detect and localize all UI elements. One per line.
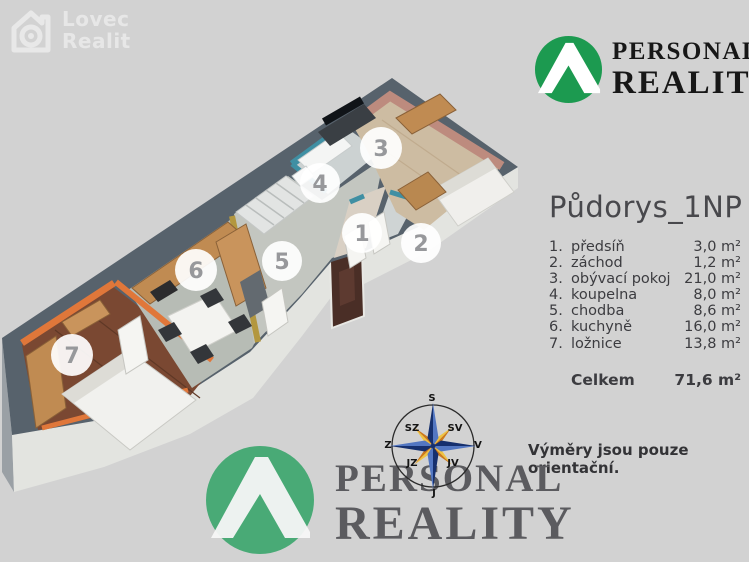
floorplan-flyer: 1 2 3 4 5 6 7 Lovec Realit [0,0,749,562]
personal-reality-wordmark: PERSONAL REALITY [612,39,749,100]
room-area: 21,0 m² [684,271,741,287]
legend-row: 5. chodba 8,6 m² [549,303,741,319]
compass-label-sw: JZ [406,458,418,469]
room-number: 3. [549,271,571,287]
compass-label-n: S [428,393,435,404]
room-number: 1. [549,239,571,255]
badge-6: 6 [188,259,203,284]
personal-reality-mark [534,35,603,104]
legend-row: 7. ložnice 13,8 m² [549,336,741,352]
compass-label-nw: SZ [405,423,419,434]
badge-7: 7 [64,344,79,369]
badge-1: 1 [354,222,369,247]
room-name: předsíň [571,239,693,255]
compass-label-ne: SV [448,423,463,434]
room-name: obývací pokoj [571,271,684,287]
lovec-realit-watermark: Lovec Realit [8,6,131,54]
brand-word-reality: REALITY [612,67,749,100]
room-name: záchod [571,255,693,271]
compass-rose: S SV V JV J JZ Z SZ [377,390,489,502]
room-number: 7. [549,336,571,352]
room-area: 13,8 m² [684,336,741,352]
legend-row: 4. koupelna 8,0 m² [549,287,741,303]
legend-row: 6. kuchyně 16,0 m² [549,319,741,335]
room-name: chodba [571,303,693,319]
total-area: 71,6 m² [674,371,741,389]
room-name: ložnice [571,336,684,352]
room-list: 1. předsíň 3,0 m² 2. záchod 1,2 m² 3. ob… [549,239,741,352]
lovec-line1: Lovec [62,8,131,30]
compass-cardinal-points [390,403,476,489]
room-area: 1,2 m² [693,255,741,271]
plan-title: Půdorys_1NP [549,190,741,224]
compass-label-e: V [474,440,482,451]
room-name: koupelna [571,287,693,303]
compass-label-w: Z [384,440,391,451]
legend-row: 1. předsíň 3,0 m² [549,239,741,255]
lovec-realit-text: Lovec Realit [62,8,131,53]
compass-label-s: J [431,488,436,499]
legend-row: 3. obývací pokoj 21,0 m² [549,271,741,287]
room-area: 8,6 m² [693,303,741,319]
personal-reality-logo-top: PERSONAL REALITY [534,35,749,104]
room-area: 3,0 m² [693,239,741,255]
lovec-line2: Realit [62,30,131,52]
total-row: Celkem 71,6 m² [549,371,741,389]
badge-5: 5 [274,250,289,275]
compass-label-se: JV [446,458,459,469]
room-number: 4. [549,287,571,303]
room-number: 5. [549,303,571,319]
badge-3: 3 [373,137,388,162]
room-area: 16,0 m² [684,319,741,335]
personal-reality-mark-large [205,445,315,562]
badge-4: 4 [312,172,327,197]
legend-row: 2. záchod 1,2 m² [549,255,741,271]
badge-2: 2 [413,232,428,257]
total-spacer [549,371,571,389]
entrance-door-panel [339,266,355,306]
room-area: 8,0 m² [693,287,741,303]
legend-panel: Půdorys_1NP 1. předsíň 3,0 m² 2. záchod … [549,190,741,389]
lovec-realit-house-icon [8,6,54,54]
room-name: kuchyně [571,319,684,335]
room-number: 2. [549,255,571,271]
brand-word-personal: PERSONAL [612,39,749,64]
total-label: Celkem [571,371,674,389]
brand-word-reality-large: REALITY [335,500,575,548]
room-number: 6. [549,319,571,335]
